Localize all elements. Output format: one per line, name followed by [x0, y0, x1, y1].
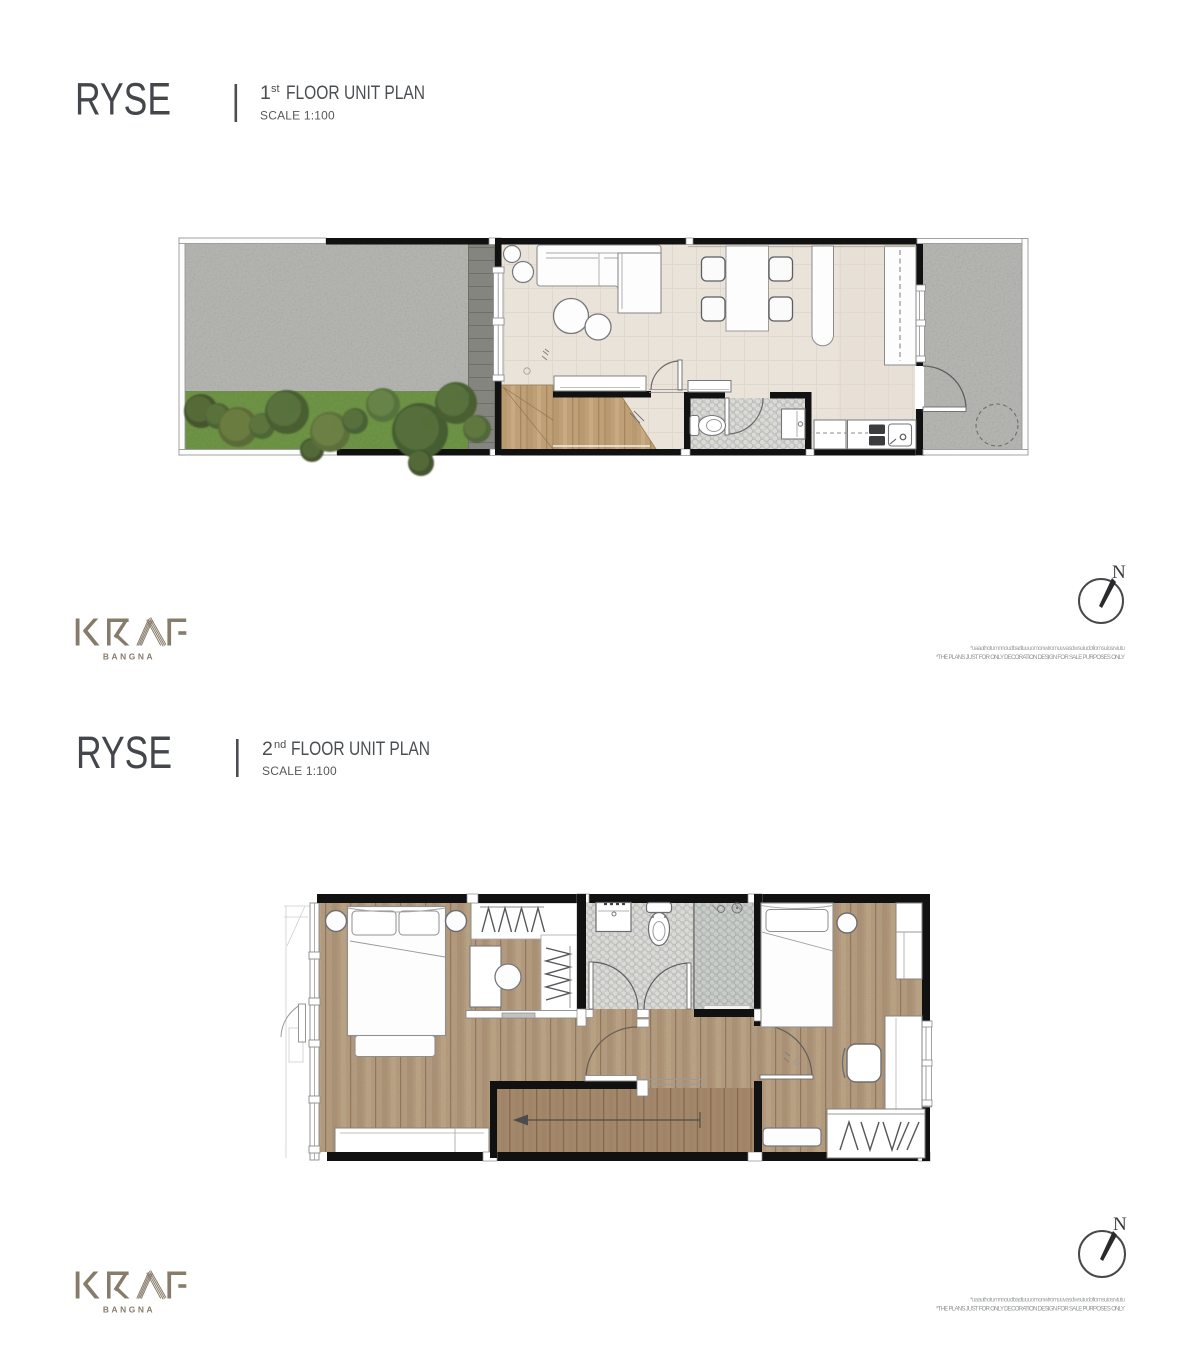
- svg-text:*uaauthotumnnoudbadtuuuomonwir: *uaauthotumnnoudbadtuuuomonwiromuuvasdws…: [970, 1297, 1125, 1304]
- svg-text:BANGNA: BANGNA: [103, 1305, 155, 1315]
- svg-text:st: st: [271, 83, 280, 95]
- svg-text:FLOOR UNIT PLAN: FLOOR UNIT PLAN: [286, 82, 425, 104]
- svg-text:1: 1: [260, 82, 271, 104]
- svg-text:N: N: [1113, 1214, 1127, 1235]
- svg-text:*THE PLANS JUST FOR ONLY DECOR: *THE PLANS JUST FOR ONLY DECORATION DESI…: [936, 655, 1125, 661]
- svg-text:2: 2: [262, 738, 273, 760]
- svg-text:RYSE: RYSE: [75, 74, 171, 125]
- svg-text:RYSE: RYSE: [76, 727, 172, 778]
- svg-text:N: N: [1112, 562, 1126, 583]
- svg-text:*THE PLANS JUST FOR ONLY DECOR: *THE PLANS JUST FOR ONLY DECORATION DESI…: [936, 1307, 1125, 1313]
- svg-text:SCALE 1:100: SCALE 1:100: [260, 109, 335, 123]
- svg-text:BANGNA: BANGNA: [103, 652, 155, 662]
- svg-text:FLOOR UNIT PLAN: FLOOR UNIT PLAN: [291, 738, 430, 760]
- svg-text:nd: nd: [274, 739, 286, 751]
- svg-text:*uaauthotumnnoudbadtuuuomonwir: *uaauthotumnnoudbadtuuuomonwiromuuvasdws…: [970, 645, 1125, 652]
- svg-text:SCALE 1:100: SCALE 1:100: [262, 764, 337, 778]
